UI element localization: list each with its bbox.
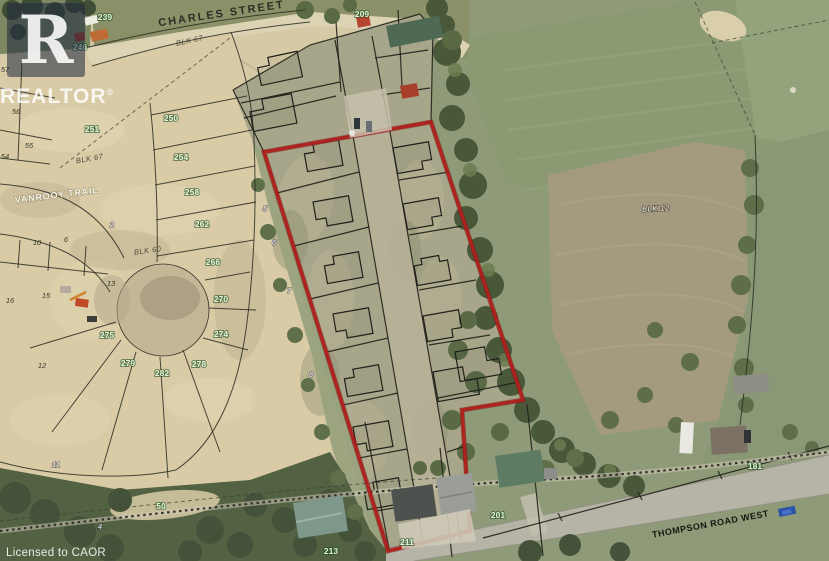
car-dark-east	[744, 430, 751, 443]
map-label-50: 50	[156, 501, 166, 511]
map-label-246: 246	[73, 42, 87, 52]
house-dark-roof	[391, 484, 437, 522]
field-marker	[790, 87, 796, 93]
shed-east	[733, 374, 769, 394]
map-label-201: 201	[491, 510, 505, 520]
map-label-181: 181	[748, 461, 762, 471]
map-label-211: 211	[400, 537, 414, 547]
map-label-239: 239	[98, 12, 112, 22]
map-label-250: 250	[164, 113, 178, 123]
license-text: Licensed to CAOR	[6, 547, 106, 559]
map-label-13: 13	[107, 279, 116, 288]
house-green-roof-se	[495, 450, 545, 488]
map-label-56: 56	[12, 107, 21, 116]
parked-car-gray	[366, 121, 372, 132]
shed-se	[544, 468, 557, 479]
map-canvas: CHARLES STREETVANROOY TRAILTHOMPSON ROAD…	[0, 0, 829, 561]
map-label-54: 54	[1, 152, 9, 161]
map-label-blk-12: BLK 12	[642, 203, 670, 213]
map-label-213: 213	[324, 546, 338, 556]
map-label-270: 270	[214, 294, 228, 304]
map-label-10: 10	[33, 238, 42, 247]
map-label-12: 12	[38, 361, 47, 370]
map-label-251: 251	[85, 124, 99, 134]
house-east	[710, 425, 748, 454]
map-label-2: 2	[109, 220, 115, 229]
map-label-11: 11	[52, 460, 60, 469]
trailer-white	[679, 422, 694, 454]
equipment-gray	[60, 286, 71, 293]
map-label-57: 57	[1, 65, 10, 74]
equipment-dark	[87, 316, 97, 322]
map-label-275: 275	[100, 330, 114, 340]
map-label-15: 15	[42, 291, 51, 300]
map-label-4: 4	[98, 522, 102, 531]
map-label-258: 258	[185, 187, 199, 197]
map-label-282: 282	[155, 368, 169, 378]
map-label-278: 278	[192, 359, 206, 369]
map-label-279: 279	[121, 358, 135, 368]
map-label-266: 266	[206, 257, 220, 267]
map-label-16: 16	[6, 296, 15, 305]
map-label-262: 262	[195, 219, 209, 229]
white-object	[349, 130, 355, 136]
map-label-209: 209	[355, 9, 369, 19]
parked-car-dark	[354, 118, 360, 129]
map-label-254: 254	[174, 152, 188, 162]
map-label-55: 55	[25, 141, 34, 150]
map-label-274: 274	[214, 329, 228, 339]
aerial-plat-map: CHARLES STREETVANROOY TRAILTHOMPSON ROAD…	[0, 0, 829, 561]
